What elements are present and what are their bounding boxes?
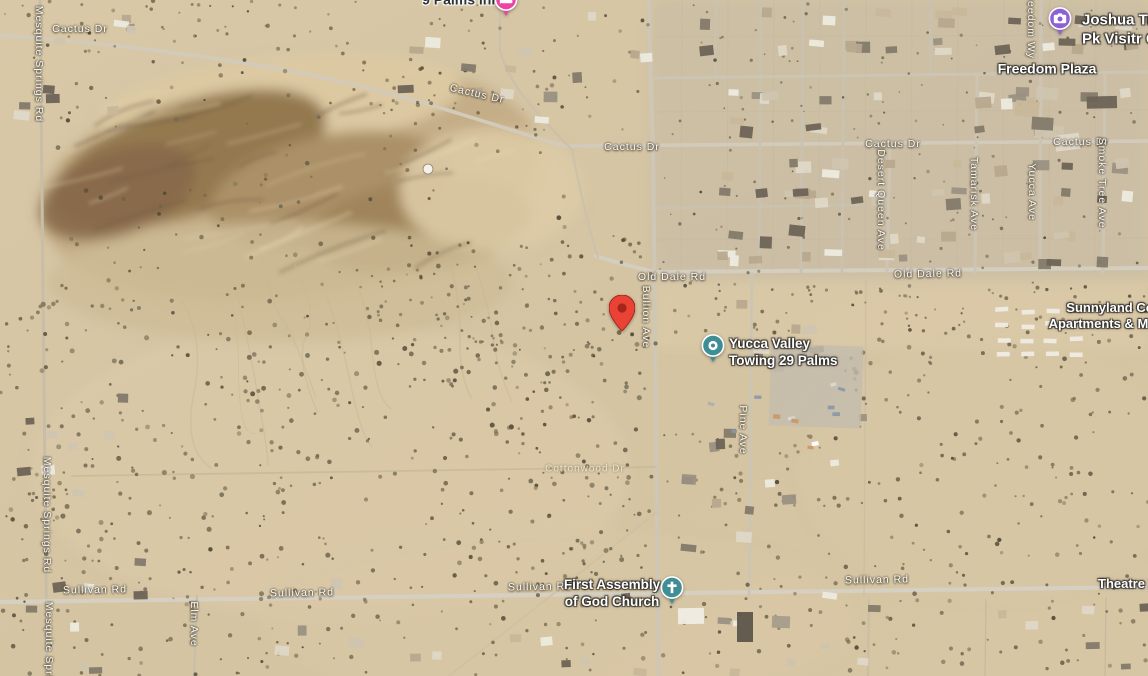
pink-lodging-icon bbox=[494, 0, 518, 17]
road-label-smoke-tree-ave: Smoke Tree Ave bbox=[1096, 138, 1108, 229]
place-label-freedom-plaza[interactable]: Freedom Plaza bbox=[998, 60, 1097, 78]
purple-attraction-icon bbox=[1048, 7, 1072, 36]
place-label-nine-palms-inn[interactable]: 9 Palms Inn bbox=[422, 0, 500, 9]
place-label-yucca-valley-towing[interactable]: Yucca ValleyTowing 29 Palms bbox=[729, 336, 838, 370]
satellite-map-viewport[interactable]: Cactus DrCactus DrCactus DrCactus DrCact… bbox=[0, 0, 1148, 676]
road-label-old-dale-rd: Old Dale Rd bbox=[894, 267, 962, 280]
road-label-sullivan-rd: Sullivan Rd bbox=[270, 586, 334, 599]
joshua-tree-visitor-marker[interactable] bbox=[1048, 7, 1072, 36]
red-pin-icon bbox=[609, 295, 635, 331]
road-label-yucca-ave: Yucca Ave bbox=[1026, 163, 1038, 221]
nine-palms-inn-marker[interactable] bbox=[494, 0, 518, 17]
road-label-tamarisk-ave: Tamarisk Ave bbox=[968, 157, 980, 231]
road-label-old-dale-rd: Old Dale Rd bbox=[638, 271, 706, 283]
place-label-line: Yucca Valley bbox=[729, 336, 838, 353]
road-label-cactus-dr: Cactus Dr bbox=[604, 141, 660, 153]
place-label-joshua-tree-pk-visitr-ctr[interactable]: Joshua TrePk Visitr Ctr bbox=[1082, 11, 1148, 49]
place-label-line: Joshua Tre bbox=[1082, 11, 1148, 30]
place-label-line: Theatre 2 bbox=[1098, 576, 1148, 592]
place-label-line: 9 Palms Inn bbox=[422, 0, 500, 9]
map-labels-layer: Cactus DrCactus DrCactus DrCactus DrCact… bbox=[0, 0, 1148, 676]
road-label-bullion-ave: Bullion Ave bbox=[640, 286, 652, 349]
road-label-freedom-wy: Freedom Wy bbox=[1025, 0, 1037, 59]
church-marker[interactable] bbox=[660, 576, 684, 605]
place-label-line: Pk Visitr Ctr bbox=[1082, 30, 1148, 49]
teal-generic-icon bbox=[701, 334, 725, 363]
road-label-elm-ave: Elm Ave bbox=[188, 601, 200, 646]
road-label-mesquite-springs-rd: Mesquite Springs Rd bbox=[41, 457, 53, 573]
place-label-line: Towing 29 Palms bbox=[729, 353, 838, 370]
dropped-pin-marker[interactable] bbox=[609, 295, 635, 331]
road-label-sullivan-rd: Sullivan Rd bbox=[508, 580, 572, 593]
yucca-valley-towing-marker[interactable] bbox=[701, 334, 725, 363]
place-label-first-assembly-of-god-church[interactable]: First Assemblyof God Church bbox=[564, 577, 660, 611]
place-label-line: Apartments & Mobil bbox=[1049, 316, 1148, 332]
place-label-line: First Assembly bbox=[564, 577, 660, 594]
road-label-desert-queen-ave: Desert Queen Ave bbox=[875, 149, 887, 251]
place-label-line: of God Church bbox=[564, 594, 660, 611]
road-label-sullivan-rd: Sullivan Rd bbox=[63, 583, 127, 596]
road-label-mesquite-springs-rd: Mesquite Springs Rd bbox=[43, 602, 55, 676]
road-label-cactus-dr: Cactus Dr bbox=[52, 23, 108, 35]
teal-cross-icon bbox=[660, 576, 684, 605]
road-label-sullivan-rd: Sullivan Rd bbox=[845, 573, 909, 586]
road-label-mesquite-springs-rd: Mesquite Springs Rd bbox=[33, 6, 45, 122]
place-label-line: Sunnyland Co bbox=[1049, 300, 1148, 316]
road-label-pine-ave: Pine Ave bbox=[737, 405, 749, 454]
place-label-theatre[interactable]: Theatre 2 bbox=[1098, 576, 1148, 592]
road-label-cottonwood-dr: Cottonwood Dr bbox=[545, 464, 625, 475]
road-label-cactus-dr: Cactus Dr bbox=[449, 82, 506, 106]
road-label-cactus-dr: Cactus Dr bbox=[865, 138, 921, 150]
place-label-sunnyland-apartments[interactable]: Sunnyland CoApartments & Mobil bbox=[1049, 300, 1148, 333]
place-label-line: Freedom Plaza bbox=[998, 60, 1097, 78]
